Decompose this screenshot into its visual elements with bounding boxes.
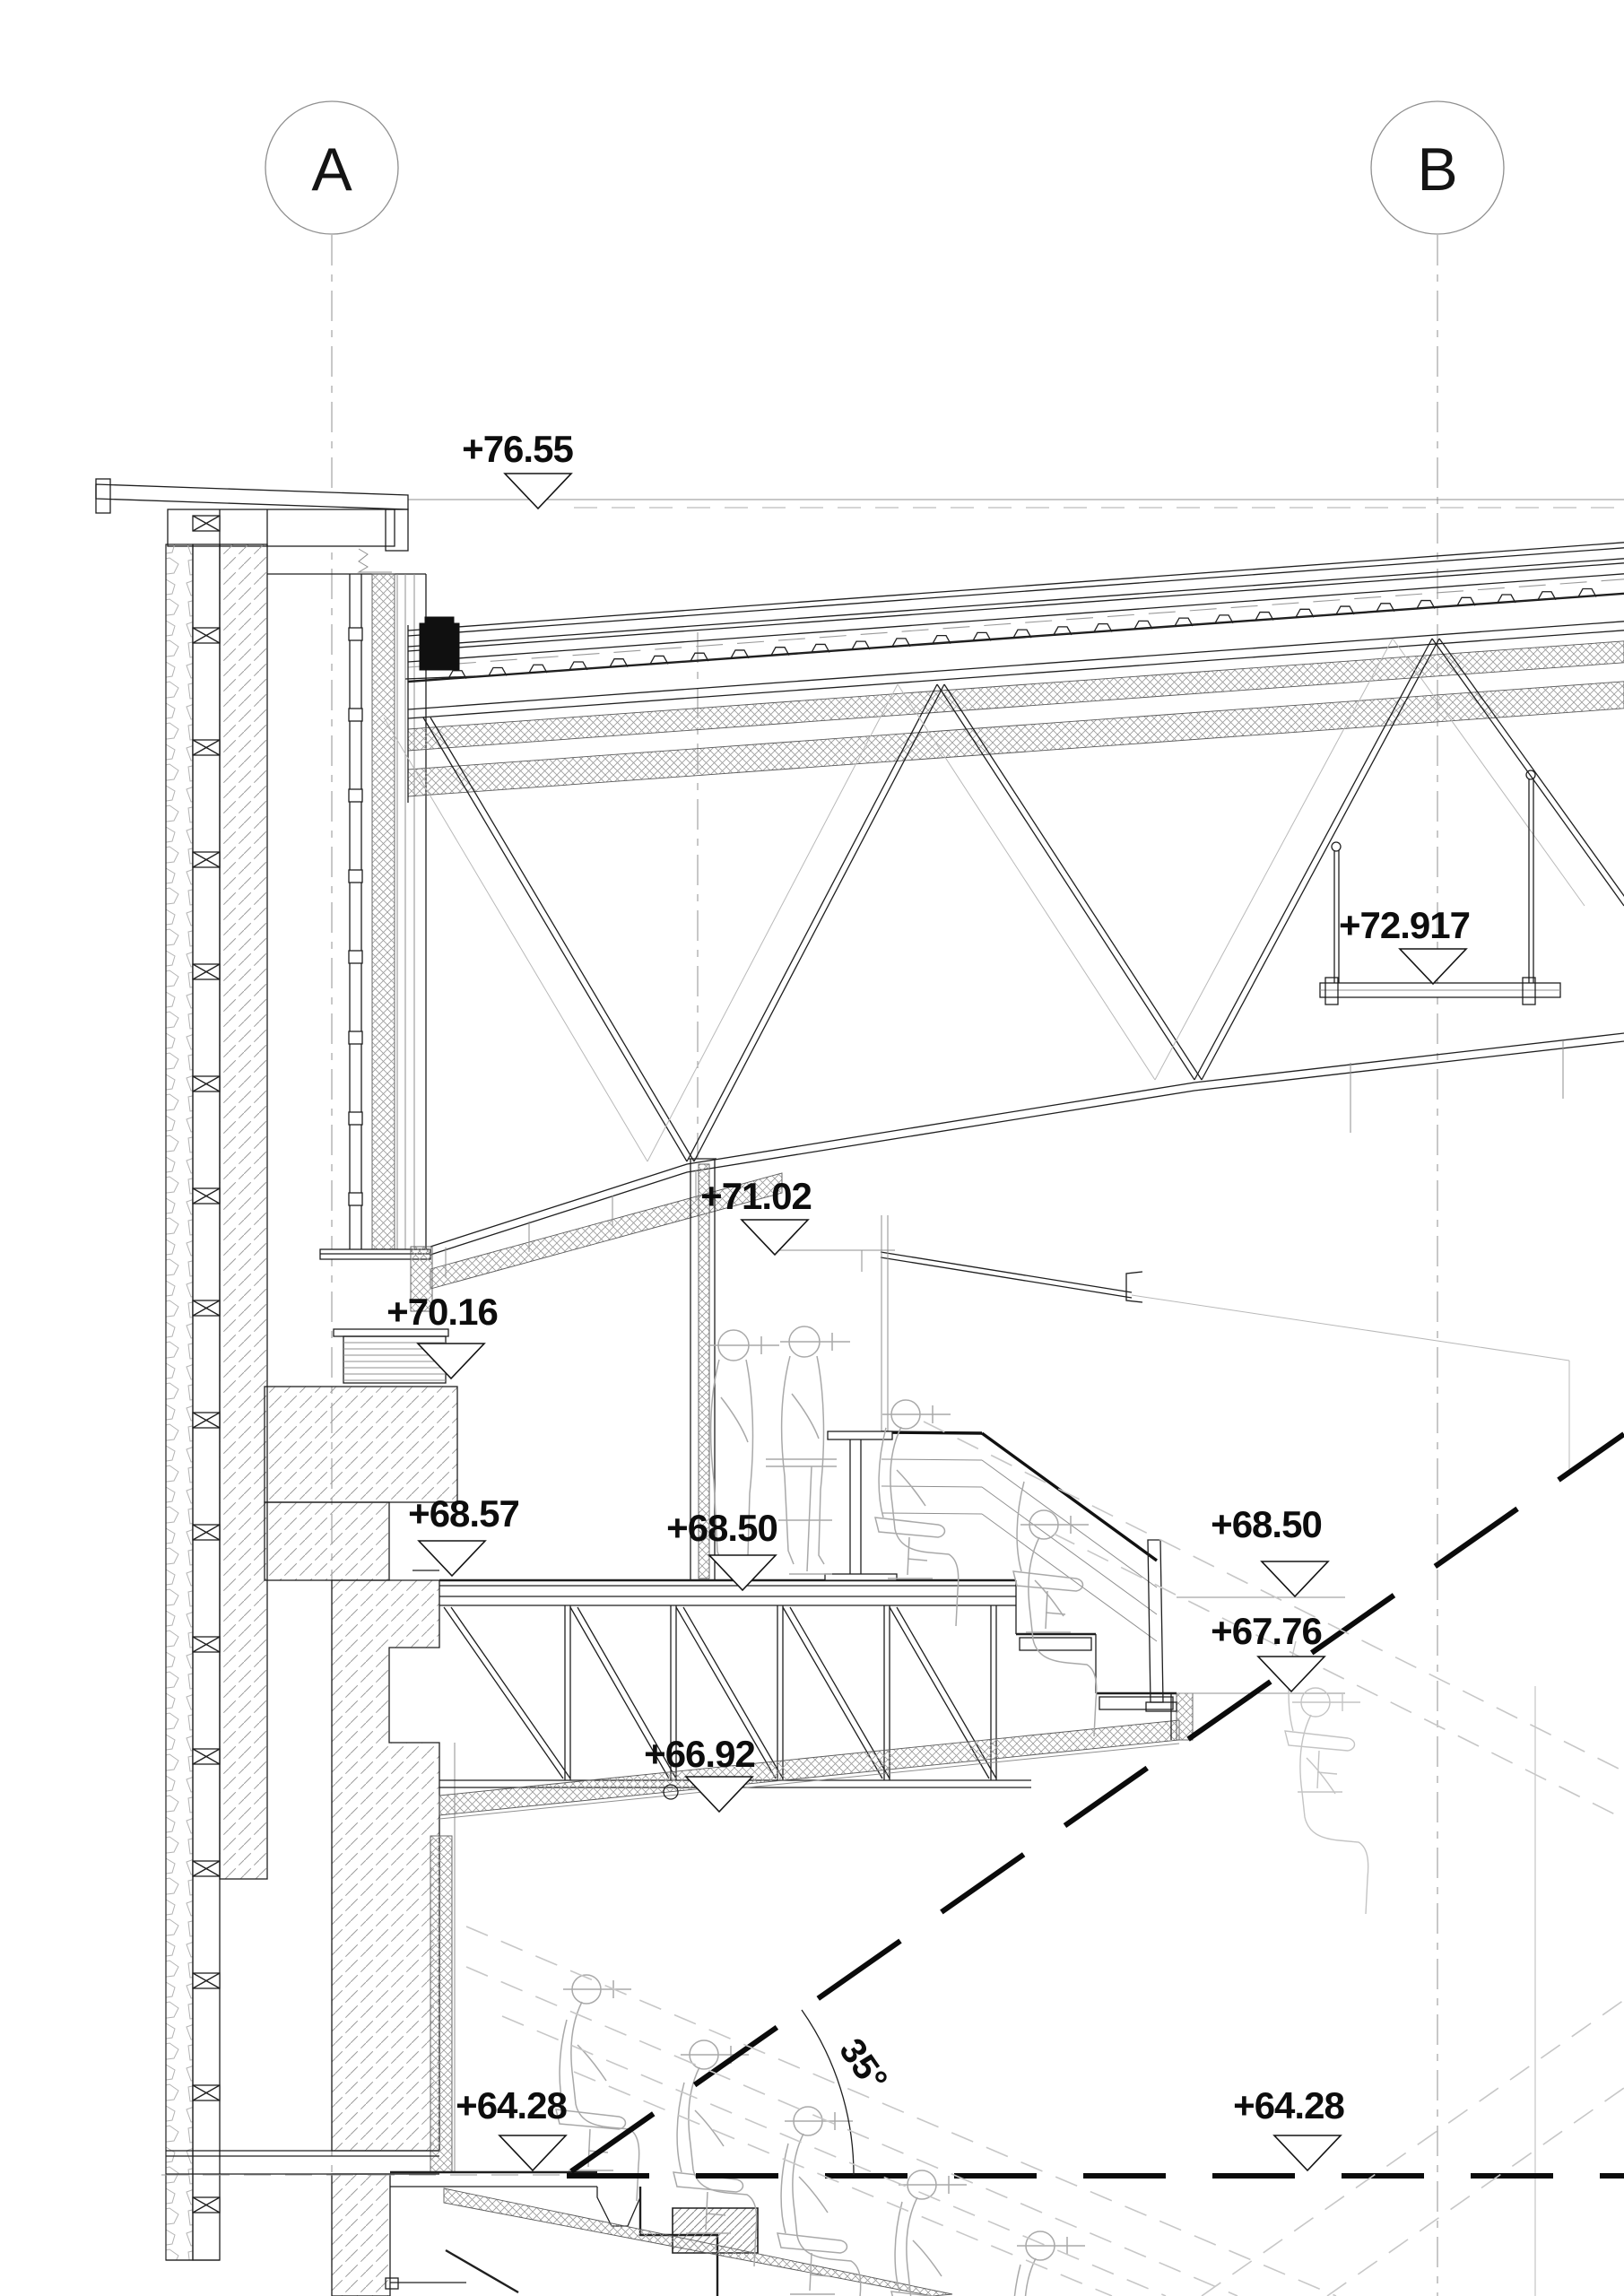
drawing-sheet: A B +76.55 +72.917 +71.02 +70.16 +68.57 … <box>0 0 1624 2296</box>
elevation-marker-6776: +67.76 <box>1211 1610 1324 1692</box>
level-triangle-icon <box>709 1555 776 1590</box>
grid-label-b: B <box>1417 135 1457 204</box>
elevation-marker-6857: +68.57 <box>408 1492 519 1576</box>
level-triangle-icon <box>1262 1561 1328 1596</box>
level-value: +71.02 <box>700 1175 812 1217</box>
level-value: +64.28 <box>1233 2084 1344 2126</box>
elevation-marker-6428-right: +64.28 <box>1233 2084 1344 2170</box>
level-triangle-icon <box>742 1220 808 1255</box>
level-value: +72.917 <box>1339 904 1470 946</box>
level-triangle-icon <box>505 474 571 509</box>
grid-label-a: A <box>311 135 352 204</box>
elevation-marker-6692: +66.92 <box>644 1733 755 1812</box>
level-value: +66.92 <box>644 1733 755 1775</box>
level-value: +68.50 <box>1211 1503 1322 1545</box>
section-drawing: A B +76.55 +72.917 +71.02 +70.16 +68.57 … <box>0 0 1624 2296</box>
elevation-marker-72917: +72.917 <box>1339 904 1470 984</box>
linework-layer <box>96 235 1624 2296</box>
elevation-marker-6850-right: +68.50 <box>1211 1503 1328 1596</box>
level-value: +68.57 <box>408 1492 519 1535</box>
level-value: +70.16 <box>386 1291 498 1333</box>
grid-bubble-b: B <box>1371 101 1504 234</box>
level-triangle-icon <box>499 2135 566 2170</box>
level-value: +76.55 <box>462 428 573 470</box>
elevation-marker-7655: +76.55 <box>462 428 573 509</box>
level-value: +64.28 <box>456 2084 567 2126</box>
level-triangle-icon <box>686 1777 752 1812</box>
level-triangle-icon <box>1274 2135 1341 2170</box>
grid-bubble-a: A <box>265 101 398 234</box>
elevation-marker-6850-left: +68.50 <box>666 1507 777 1590</box>
level-value: +68.50 <box>666 1507 777 1549</box>
elevation-marker-7102: +71.02 <box>700 1175 812 1255</box>
elevation-marker-6428-left: +64.28 <box>456 2084 567 2170</box>
level-triangle-icon <box>1400 949 1466 984</box>
level-value: +67.76 <box>1211 1610 1322 1652</box>
